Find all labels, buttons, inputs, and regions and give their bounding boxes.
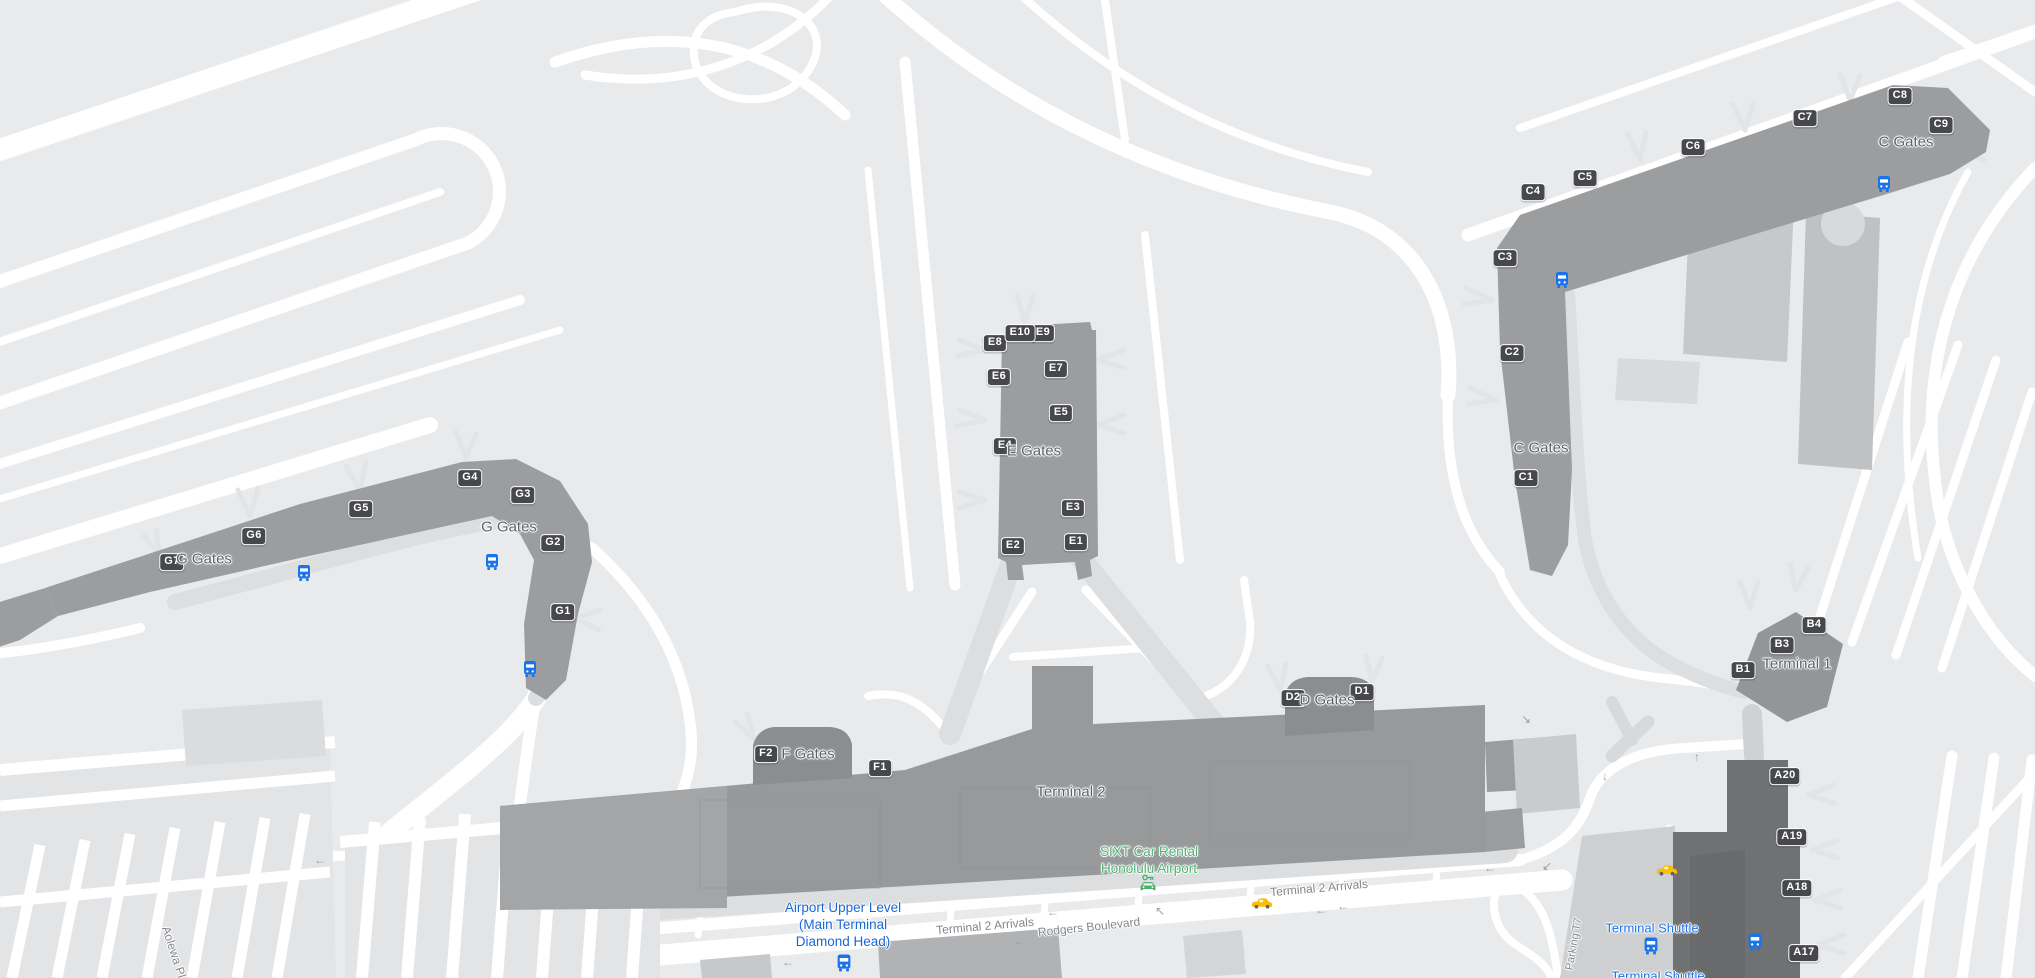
base-map bbox=[0, 0, 2035, 978]
gate-badge-b3[interactable]: B3 bbox=[1770, 636, 1795, 654]
gate-badge-b4[interactable]: B4 bbox=[1802, 616, 1827, 634]
bus-icon[interactable] bbox=[1554, 271, 1570, 289]
upper-level-line1: Airport Upper Level bbox=[785, 899, 901, 916]
gate-badge-c8[interactable]: C8 bbox=[1888, 87, 1913, 105]
direction-arrow-icon: ← bbox=[1315, 904, 1327, 916]
gate-badge-g3[interactable]: G3 bbox=[510, 486, 535, 504]
car-icon bbox=[1250, 896, 1274, 910]
transit-label-terminal-shuttle-2[interactable]: Terminal Shuttle bbox=[1611, 969, 1704, 978]
upper-level-line2: (Main Terminal bbox=[785, 916, 901, 933]
area-label-g-gates-left[interactable]: G Gates bbox=[176, 551, 232, 568]
upper-level-line3: Diamond Head) bbox=[785, 933, 901, 950]
gate-badge-g6[interactable]: G6 bbox=[241, 527, 266, 545]
direction-arrow-icon: ↓ bbox=[1602, 770, 1608, 782]
bus-icon[interactable] bbox=[484, 553, 500, 571]
gate-badge-e2[interactable]: E2 bbox=[1001, 537, 1025, 555]
gate-badge-c3[interactable]: C3 bbox=[1493, 249, 1518, 267]
rental-car-icon[interactable] bbox=[1138, 874, 1158, 894]
direction-arrow-icon: ← bbox=[1484, 862, 1496, 874]
transit-label-terminal-shuttle-1[interactable]: Terminal Shuttle bbox=[1605, 921, 1698, 936]
gate-badge-g5[interactable]: G5 bbox=[348, 500, 373, 518]
area-label-c-gates-top[interactable]: C Gates bbox=[1878, 134, 1933, 151]
gate-badge-e1[interactable]: E1 bbox=[1064, 533, 1088, 551]
direction-arrow-icon: ↘ bbox=[1521, 713, 1531, 725]
gate-badge-f1[interactable]: F1 bbox=[868, 759, 892, 777]
direction-arrow-icon: ↑ bbox=[1694, 751, 1700, 763]
sixt-line1: SIXT Car Rental bbox=[1100, 843, 1198, 860]
gate-badge-c5[interactable]: C5 bbox=[1573, 169, 1598, 187]
gate-badge-c6[interactable]: C6 bbox=[1681, 138, 1706, 156]
gate-badge-e10[interactable]: E10 bbox=[1005, 324, 1036, 342]
gate-badge-c4[interactable]: C4 bbox=[1521, 183, 1546, 201]
gate-badge-e7[interactable]: E7 bbox=[1044, 360, 1068, 378]
gate-badge-e5[interactable]: E5 bbox=[1049, 404, 1073, 422]
terminal-2-label[interactable]: Terminal 2 bbox=[1036, 784, 1105, 801]
gate-badge-e3[interactable]: E3 bbox=[1061, 499, 1085, 517]
area-label-g-gates-right[interactable]: G Gates bbox=[481, 519, 537, 536]
direction-arrow-icon: ← bbox=[782, 956, 794, 968]
bus-icon[interactable] bbox=[1643, 937, 1660, 956]
area-label-c-gates-side[interactable]: C Gates bbox=[1513, 440, 1568, 457]
bus-icon[interactable] bbox=[1747, 933, 1764, 952]
direction-arrow-icon: ↙ bbox=[1542, 860, 1552, 872]
gate-badge-b1[interactable]: B1 bbox=[1731, 661, 1756, 679]
gate-badge-a19[interactable]: A19 bbox=[1776, 828, 1807, 846]
bus-icon[interactable] bbox=[522, 660, 538, 678]
gate-badge-c1[interactable]: C1 bbox=[1514, 469, 1539, 487]
area-label-f-gates[interactable]: F Gates bbox=[781, 746, 834, 763]
direction-arrow-icon: ← bbox=[1013, 935, 1025, 947]
terminal-1-label[interactable]: Terminal 1 bbox=[1762, 656, 1831, 673]
direction-arrow-icon: ← bbox=[314, 854, 326, 866]
gate-badge-e6[interactable]: E6 bbox=[987, 368, 1011, 386]
gate-badge-a17[interactable]: A17 bbox=[1788, 944, 1819, 962]
bus-icon[interactable] bbox=[296, 564, 312, 582]
gate-badge-f2[interactable]: F2 bbox=[754, 745, 778, 763]
gate-badge-g4[interactable]: G4 bbox=[457, 469, 482, 487]
gate-badge-e8[interactable]: E8 bbox=[983, 334, 1007, 352]
gate-badge-c9[interactable]: C9 bbox=[1929, 116, 1954, 134]
gate-badge-g1[interactable]: G1 bbox=[550, 603, 575, 621]
gate-badge-c2[interactable]: C2 bbox=[1500, 344, 1525, 362]
area-label-e-gates[interactable]: E Gates bbox=[1007, 443, 1061, 460]
direction-arrow-icon: ← bbox=[1337, 900, 1349, 912]
gate-badge-g2[interactable]: G2 bbox=[540, 534, 565, 552]
transit-label-airport-upper-level[interactable]: Airport Upper Level (Main Terminal Diamo… bbox=[785, 899, 901, 950]
gate-badge-a18[interactable]: A18 bbox=[1781, 879, 1812, 897]
bus-icon[interactable] bbox=[1876, 175, 1892, 193]
poi-label-sixt[interactable]: SIXT Car Rental Honolulu Airport bbox=[1100, 843, 1198, 877]
area-label-d-gates[interactable]: D Gates bbox=[1299, 692, 1354, 709]
gate-badge-c7[interactable]: C7 bbox=[1793, 109, 1818, 127]
map-canvas[interactable]: C1 C2 C3 C4 C5 C6 C7 C8 C9 E1 E2 E3 E4 E… bbox=[0, 0, 2035, 978]
gate-badge-a20[interactable]: A20 bbox=[1769, 767, 1800, 785]
direction-arrow-icon: ← bbox=[1047, 906, 1059, 918]
bus-icon[interactable] bbox=[836, 954, 853, 973]
car-icon bbox=[1655, 863, 1679, 877]
direction-arrow-icon: ↖ bbox=[1155, 905, 1165, 917]
